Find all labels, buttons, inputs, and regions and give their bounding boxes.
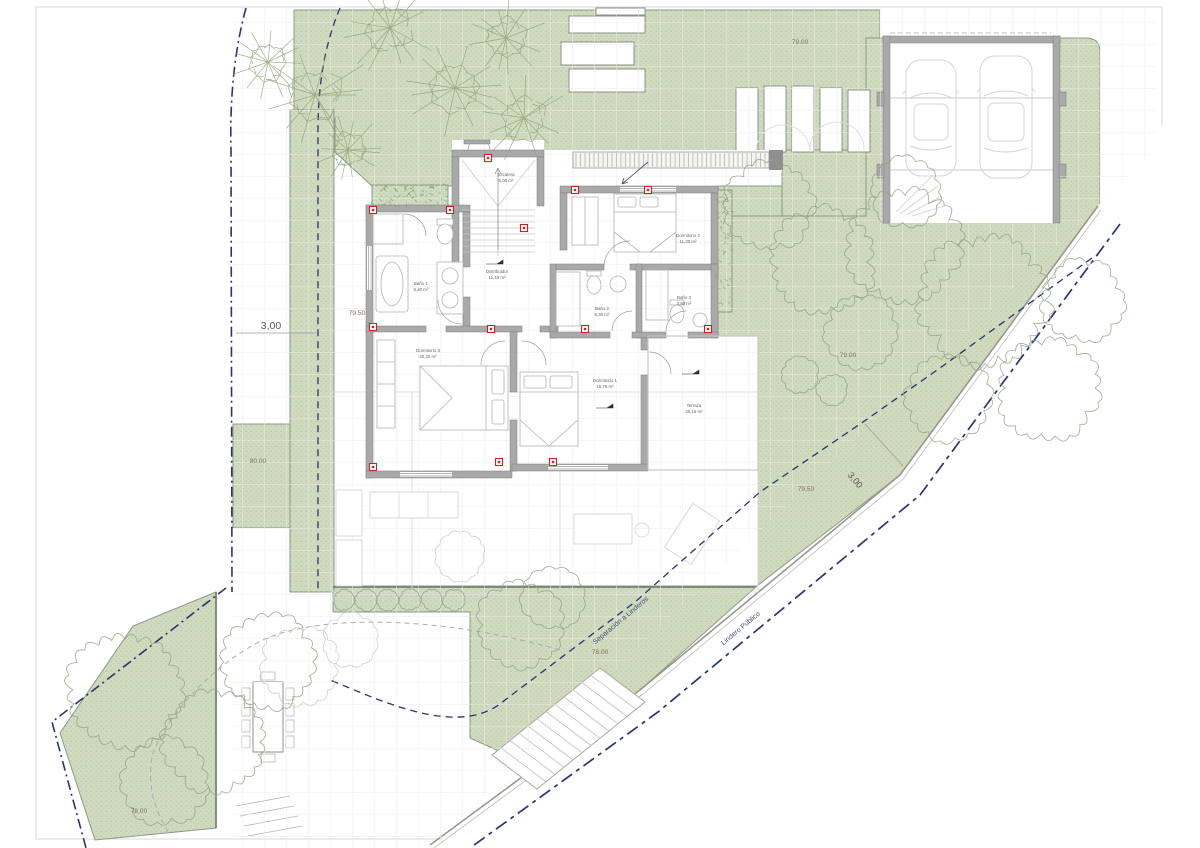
room-label: Baño 2 [595, 306, 609, 311]
room-label: Escalera [497, 172, 515, 177]
room-area: 8,40 m² [414, 287, 429, 292]
spot-level: 79.50 [349, 310, 366, 317]
room-label: Dormitorio 1 [593, 378, 617, 383]
room-label: Distribuidor [486, 269, 509, 274]
spot-level: 79.00 [840, 352, 857, 359]
room-area: 16,75 m² [596, 384, 614, 389]
wall-marker-icon [645, 187, 652, 194]
room-area: 5,30 m² [595, 312, 610, 317]
wall-marker-icon [705, 326, 712, 333]
room-label: Dormitorio 2 [676, 233, 700, 238]
bed-dormitorio1 [520, 372, 578, 446]
room-label: Baño 3 [677, 295, 691, 300]
wall-marker-icon [485, 155, 492, 162]
toilet [437, 219, 453, 244]
site-plan-sheet: 3,00 3,00 [0, 0, 1200, 848]
room-area: 3,60 m² [677, 301, 692, 306]
lounger [574, 514, 632, 544]
bed-dormitorio3 [420, 366, 508, 430]
spot-level: 80.00 [250, 458, 267, 465]
wall-marker-icon [521, 225, 528, 232]
wall-marker-icon [370, 464, 377, 471]
green-area-southwest [60, 592, 216, 840]
room-label: Baño 1 [414, 281, 428, 286]
bed-dormitorio2 [614, 194, 676, 252]
wall-marker-icon [550, 459, 557, 466]
room-label: Dormitorio 3 [416, 348, 440, 353]
room-area: 5,00 m² [499, 178, 514, 183]
planter-box [336, 540, 362, 586]
spot-level: 79.50 [798, 486, 815, 493]
wall-marker-icon [447, 207, 454, 214]
site-plan-drawing: 3,00 3,00 [0, 0, 1200, 848]
vanity-counter [437, 262, 463, 314]
toilet [587, 271, 601, 294]
wall-marker-icon [370, 207, 377, 214]
wall-marker-icon [572, 187, 579, 194]
room-area: 11,30 m² [679, 239, 697, 244]
room-area: 11,40 m² [488, 275, 506, 280]
room-area: 20,20 m² [419, 354, 437, 359]
room-area: 20,15 m² [685, 409, 703, 414]
spot-level: 78.00 [131, 808, 148, 815]
lounger [370, 492, 458, 518]
wall-marker-icon [488, 326, 495, 333]
spot-level: 79.00 [792, 39, 809, 46]
wall-marker-icon [496, 459, 503, 466]
wall-marker-icon [370, 324, 377, 331]
spot-level: 78.00 [592, 649, 609, 656]
wall-marker-icon [582, 326, 589, 333]
planter-box [336, 490, 362, 536]
dimension-label: 3,00 [261, 320, 282, 332]
room-label: Terraza [687, 403, 702, 408]
